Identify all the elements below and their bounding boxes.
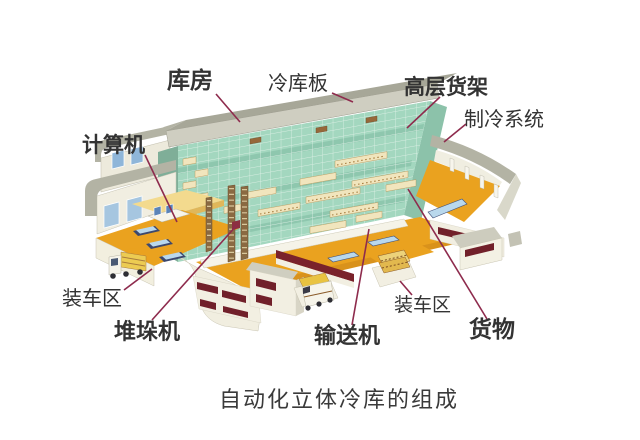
- warehouse-illustration: [0, 0, 640, 440]
- line-loading-right: [400, 281, 412, 295]
- label-stacker-crane: 堆垛机: [114, 320, 180, 343]
- label-refrigeration-system: 制冷系统: [464, 110, 544, 131]
- label-high-rise-rack: 高层货架: [404, 76, 488, 98]
- label-loading-area-left: 装车区: [62, 289, 122, 310]
- diagram-canvas: 库房 冷库板 高层货架 制冷系统 计算机 装车区 堆垛机 输送机 装车区 货物 …: [0, 0, 640, 440]
- diagram-title: 自动化立体冷库的组成: [219, 382, 459, 414]
- label-conveyor: 输送机: [314, 324, 380, 347]
- line-refrigeration: [444, 124, 466, 142]
- label-goods: 货物: [469, 318, 515, 342]
- label-storeroom: 库房: [167, 69, 213, 93]
- label-computer: 计算机: [82, 134, 145, 156]
- label-loading-area-right: 装车区: [394, 296, 451, 316]
- label-cold-storage-panel: 冷库板: [268, 74, 328, 95]
